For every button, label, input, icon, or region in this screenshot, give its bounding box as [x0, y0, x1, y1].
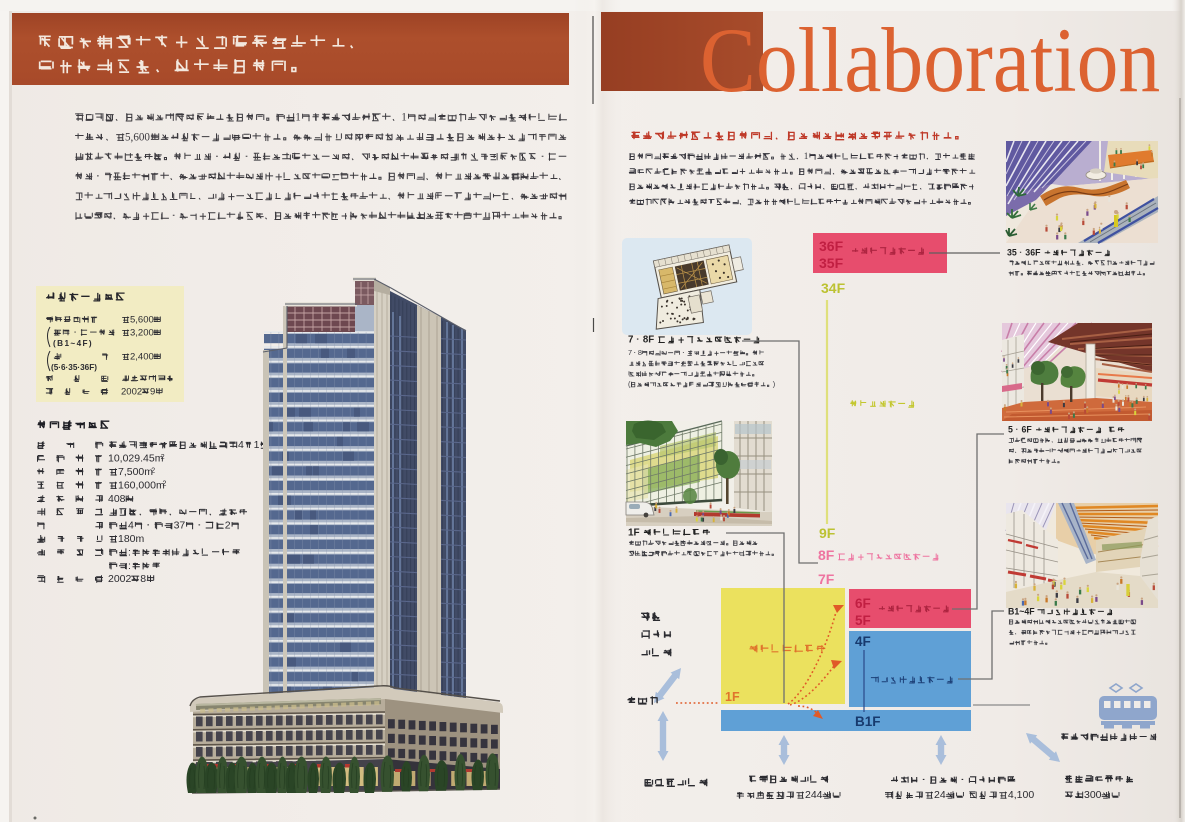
- svg-text:5,600: 5,600: [125, 131, 150, 143]
- svg-text:B1~4F: B1~4F: [1008, 606, 1035, 616]
- svg-text:2002: 2002: [121, 386, 142, 397]
- svg-text:1: 1: [295, 112, 301, 124]
- svg-text:4: 4: [128, 520, 134, 532]
- svg-text:9: 9: [150, 386, 155, 397]
- svg-text::: :: [128, 560, 131, 572]
- svg-text:7,500m: 7,500m: [118, 466, 153, 478]
- svg-text:5: 5: [1008, 424, 1013, 434]
- svg-text:180m: 180m: [118, 533, 145, 545]
- svg-text:244: 244: [805, 789, 823, 801]
- svg-text:2: 2: [161, 454, 165, 461]
- svg-text:5,600: 5,600: [130, 314, 154, 325]
- svg-text:1: 1: [401, 112, 407, 124]
- svg-text:160,000m: 160,000m: [118, 479, 165, 491]
- svg-text:8: 8: [638, 348, 642, 357]
- svg-text:): ): [773, 380, 775, 389]
- svg-text:35: 35: [1007, 247, 1017, 257]
- svg-text:2: 2: [225, 520, 231, 532]
- svg-text:2: 2: [151, 467, 155, 474]
- svg-text:4,100: 4,100: [1008, 789, 1034, 801]
- svg-text:10,029.45m: 10,029.45m: [108, 453, 164, 465]
- svg-text:6F: 6F: [855, 596, 871, 611]
- svg-text:1F: 1F: [628, 527, 640, 538]
- svg-text:37: 37: [174, 520, 186, 532]
- svg-text:7: 7: [628, 348, 632, 357]
- svg-text:9F: 9F: [819, 525, 836, 541]
- svg-text:300: 300: [1084, 789, 1102, 801]
- svg-text:4: 4: [238, 439, 244, 451]
- svg-text:2: 2: [163, 481, 167, 488]
- svg-text:408: 408: [108, 493, 126, 505]
- svg-text:8F: 8F: [643, 335, 654, 346]
- svg-text:8F: 8F: [818, 547, 835, 563]
- svg-text:7F: 7F: [818, 571, 835, 587]
- svg-text:8: 8: [140, 573, 146, 585]
- svg-text:B1F: B1F: [855, 714, 881, 729]
- svg-text:36F: 36F: [819, 238, 844, 254]
- svg-text:(5·6·35·36F): (5·6·35·36F): [51, 363, 97, 372]
- svg-text:6F: 6F: [1022, 424, 1033, 434]
- svg-text:(B1~4F): (B1~4F): [53, 339, 93, 348]
- svg-text:34F: 34F: [821, 280, 846, 296]
- svg-text:35F: 35F: [819, 255, 844, 271]
- svg-text:1: 1: [254, 439, 260, 451]
- svg-text:3,200: 3,200: [130, 327, 154, 338]
- svg-text:1F: 1F: [725, 690, 740, 704]
- svg-text:Collaboration: Collaboration: [700, 10, 1160, 111]
- svg-text:7: 7: [628, 335, 633, 346]
- svg-text:2,400: 2,400: [130, 351, 154, 362]
- svg-text:24: 24: [934, 789, 946, 801]
- svg-text:2002: 2002: [108, 573, 132, 585]
- svg-text:1: 1: [804, 151, 809, 161]
- svg-text:4F: 4F: [855, 634, 871, 649]
- svg-text::: :: [128, 546, 131, 558]
- svg-text:36F: 36F: [1025, 247, 1041, 257]
- svg-text:5F: 5F: [855, 613, 871, 628]
